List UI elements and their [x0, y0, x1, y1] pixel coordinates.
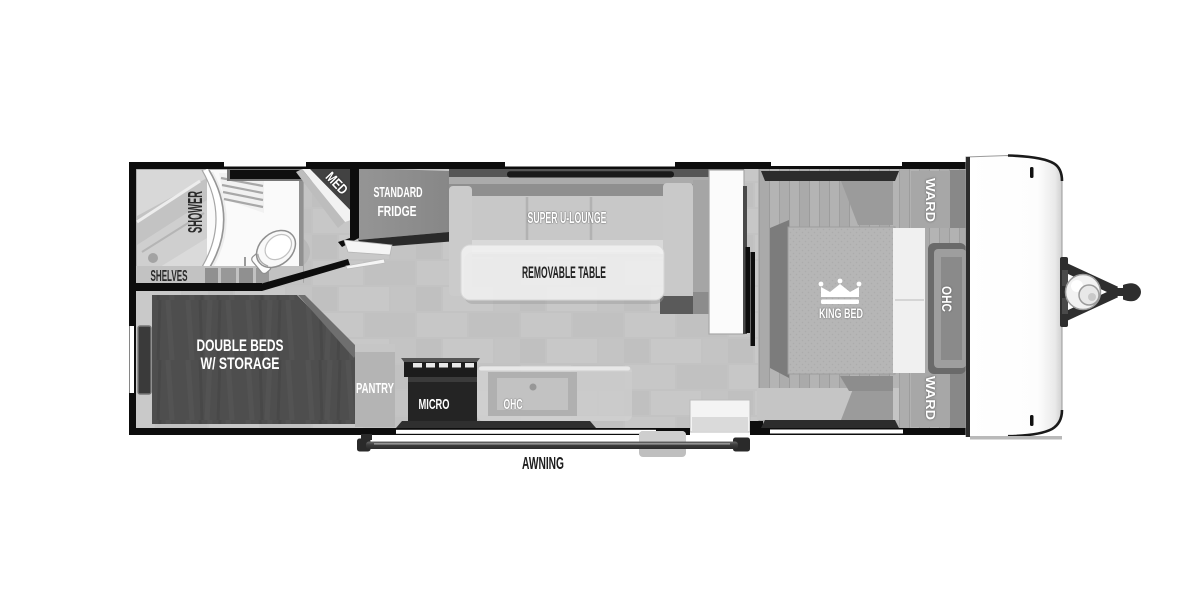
svg-text:OHC: OHC: [939, 286, 954, 312]
svg-text:W/ STORAGE: W/ STORAGE: [201, 354, 280, 373]
svg-text:STANDARD: STANDARD: [374, 185, 423, 201]
svg-text:DOUBLE BEDS: DOUBLE BEDS: [197, 336, 284, 355]
svg-text:REMOVABLE TABLE: REMOVABLE TABLE: [522, 264, 606, 282]
svg-text:WARD: WARD: [923, 178, 938, 222]
svg-text:MICRO: MICRO: [419, 396, 450, 413]
svg-text:PANTRY: PANTRY: [356, 380, 394, 397]
svg-text:SHELVES: SHELVES: [151, 268, 188, 285]
svg-text:KING BED: KING BED: [819, 306, 863, 321]
svg-text:FRIDGE: FRIDGE: [378, 204, 417, 220]
svg-text:WARD: WARD: [923, 376, 938, 420]
svg-text:AWNING: AWNING: [522, 453, 564, 473]
svg-text:SUPER U-LOUNGE: SUPER U-LOUNGE: [528, 210, 607, 227]
svg-text:OHC: OHC: [504, 396, 523, 413]
svg-text:SHOWER: SHOWER: [185, 191, 207, 233]
